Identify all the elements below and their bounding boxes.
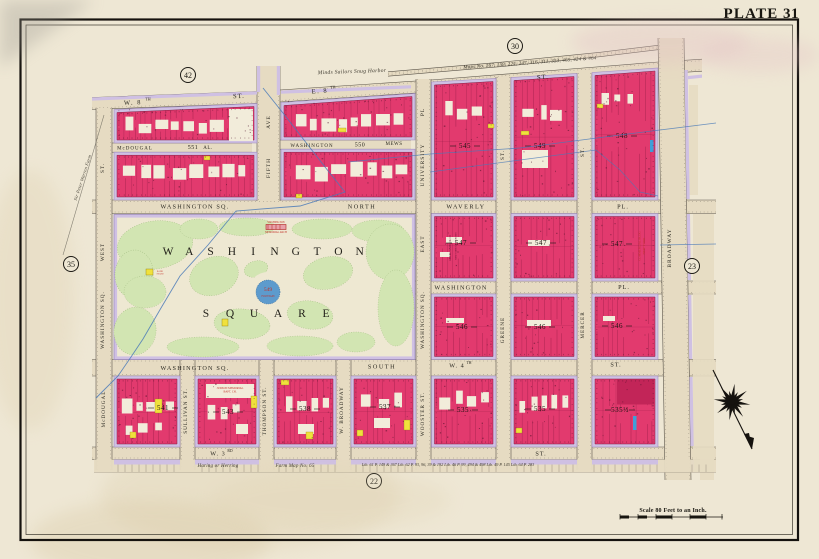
svg-text:EAST: EAST: [420, 236, 426, 253]
svg-text:WOOSTER ST.: WOOSTER ST.: [420, 392, 426, 436]
svg-text:23: 23: [688, 262, 696, 271]
svg-text:H: H: [228, 246, 236, 258]
svg-text:Scale 80 Feet to an Inch.: Scale 80 Feet to an Inch.: [639, 508, 707, 514]
svg-text:42: 42: [184, 71, 192, 80]
svg-text:WASHINGTON SQ.: WASHINGTON SQ.: [100, 291, 106, 349]
svg-text:ST.: ST.: [500, 150, 506, 160]
svg-text:T: T: [314, 246, 321, 258]
svg-text:WAVERLY: WAVERLY: [446, 204, 485, 211]
svg-text:A: A: [185, 246, 194, 258]
svg-text:AVE: AVE: [266, 115, 272, 129]
svg-text:ST.: ST.: [535, 451, 546, 458]
svg-text:W. 8: W. 8: [124, 99, 142, 107]
svg-text:BAPT. CH.: BAPT. CH.: [224, 391, 237, 394]
svg-text:546: 546: [456, 323, 468, 331]
svg-text:BROADWAY: BROADWAY: [667, 228, 673, 267]
svg-text:547: 547: [535, 239, 547, 247]
svg-text:Farm Map No. 65: Farm Map No. 65: [274, 464, 314, 469]
svg-text:THOMPSON ST.: THOMPSON ST.: [262, 387, 268, 436]
svg-text:35: 35: [67, 260, 75, 269]
svg-text:PLATE: PLATE: [724, 6, 779, 22]
svg-text:WASHINGTON: WASHINGTON: [267, 221, 284, 224]
svg-text:S: S: [203, 308, 209, 320]
svg-text:E. 8: E. 8: [311, 87, 328, 95]
svg-text:541: 541: [157, 404, 169, 412]
svg-text:WEST: WEST: [100, 243, 106, 261]
svg-text:ST.: ST.: [580, 147, 586, 157]
svg-text:COMMERCIAL BLDG: COMMERCIAL BLDG: [638, 231, 642, 261]
svg-text:AMERICAN BOOK CO: AMERICAN BOOK CO: [449, 235, 452, 261]
svg-text:McDOUGAL: McDOUGAL: [117, 147, 153, 152]
svg-text:PL.: PL.: [617, 204, 629, 211]
svg-text:MEWS: MEWS: [386, 142, 403, 147]
svg-text:W. 3: W. 3: [210, 451, 225, 458]
svg-text:535½: 535½: [611, 406, 629, 414]
svg-text:550: 550: [355, 143, 366, 149]
svg-text:PL: PL: [420, 108, 426, 116]
svg-text:AL.: AL.: [203, 146, 212, 151]
svg-text:547: 547: [611, 240, 623, 248]
svg-text:ST.: ST.: [100, 163, 106, 173]
svg-text:NEW YORK: NEW YORK: [642, 237, 646, 255]
svg-text:MEMORIAL ARCH: MEMORIAL ARCH: [265, 231, 287, 234]
svg-text:N: N: [270, 246, 279, 258]
svg-text:JUDSON MEMORIAL: JUDSON MEMORIAL: [217, 387, 244, 390]
svg-text:NEW YORK UNIVERSITY: NEW YORK UNIVERSITY: [455, 232, 458, 260]
svg-text:31: 31: [783, 6, 799, 22]
svg-text:O: O: [334, 246, 342, 258]
svg-text:MERCER: MERCER: [580, 311, 586, 338]
svg-text:W: W: [163, 246, 174, 258]
svg-text:TH: TH: [466, 361, 471, 365]
svg-text:UNIVERSITY: UNIVERSITY: [420, 144, 426, 187]
svg-text:551: 551: [188, 145, 199, 151]
svg-text:TH: TH: [330, 84, 336, 89]
svg-text:538: 538: [299, 405, 311, 413]
svg-text:535: 535: [457, 406, 469, 414]
svg-text:I: I: [251, 246, 255, 258]
svg-text:SULLIVAN ST.: SULLIVAN ST.: [183, 388, 189, 434]
svg-text:ST.: ST.: [610, 362, 621, 369]
svg-text:N: N: [356, 246, 365, 258]
svg-text:S: S: [207, 246, 213, 258]
svg-text:546: 546: [534, 323, 546, 331]
svg-text:SOUTH: SOUTH: [368, 364, 396, 371]
svg-text:543: 543: [222, 408, 234, 416]
svg-text:549: 549: [264, 287, 273, 293]
svg-text:WASHINGTON: WASHINGTON: [290, 144, 333, 149]
svg-text:ST.: ST.: [233, 93, 245, 101]
svg-text:546: 546: [611, 322, 623, 330]
svg-text:545: 545: [459, 142, 471, 150]
svg-text:WASHINGTON SQ.: WASHINGTON SQ.: [161, 365, 230, 372]
svg-text:30: 30: [511, 42, 519, 51]
svg-text:A: A: [274, 308, 283, 320]
svg-text:PL.: PL.: [618, 284, 630, 291]
svg-text:FOUNTAIN: FOUNTAIN: [261, 295, 274, 298]
svg-text:ST.: ST.: [537, 74, 549, 82]
svg-text:STAND: STAND: [156, 273, 164, 276]
svg-text:NORTH: NORTH: [348, 204, 376, 211]
svg-text:WASHINGTON SQ.: WASHINGTON SQ.: [420, 291, 426, 349]
svg-text:FIFTH: FIFTH: [266, 158, 272, 178]
svg-text:537: 537: [379, 403, 391, 411]
svg-text:W. BROADWAY: W. BROADWAY: [339, 386, 345, 434]
svg-text:WASHINGTON SQ.: WASHINGTON SQ.: [161, 204, 230, 211]
svg-text:535: 535: [534, 405, 546, 413]
svg-text:WASHINGTON: WASHINGTON: [434, 285, 487, 292]
svg-text:R: R: [298, 308, 306, 320]
svg-text:W. 4: W. 4: [449, 363, 464, 370]
svg-text:U: U: [250, 308, 259, 320]
svg-text:E: E: [322, 308, 329, 320]
svg-text:G: G: [292, 246, 300, 258]
svg-text:RD: RD: [227, 449, 233, 453]
svg-text:Haring or Herring: Haring or Herring: [197, 464, 239, 469]
svg-text:TH: TH: [145, 97, 150, 102]
svg-text:GREENE: GREENE: [500, 317, 506, 343]
svg-text:548: 548: [616, 132, 628, 140]
svg-text:Q: Q: [226, 308, 235, 320]
svg-text:McDOUGAL: McDOUGAL: [101, 391, 107, 428]
